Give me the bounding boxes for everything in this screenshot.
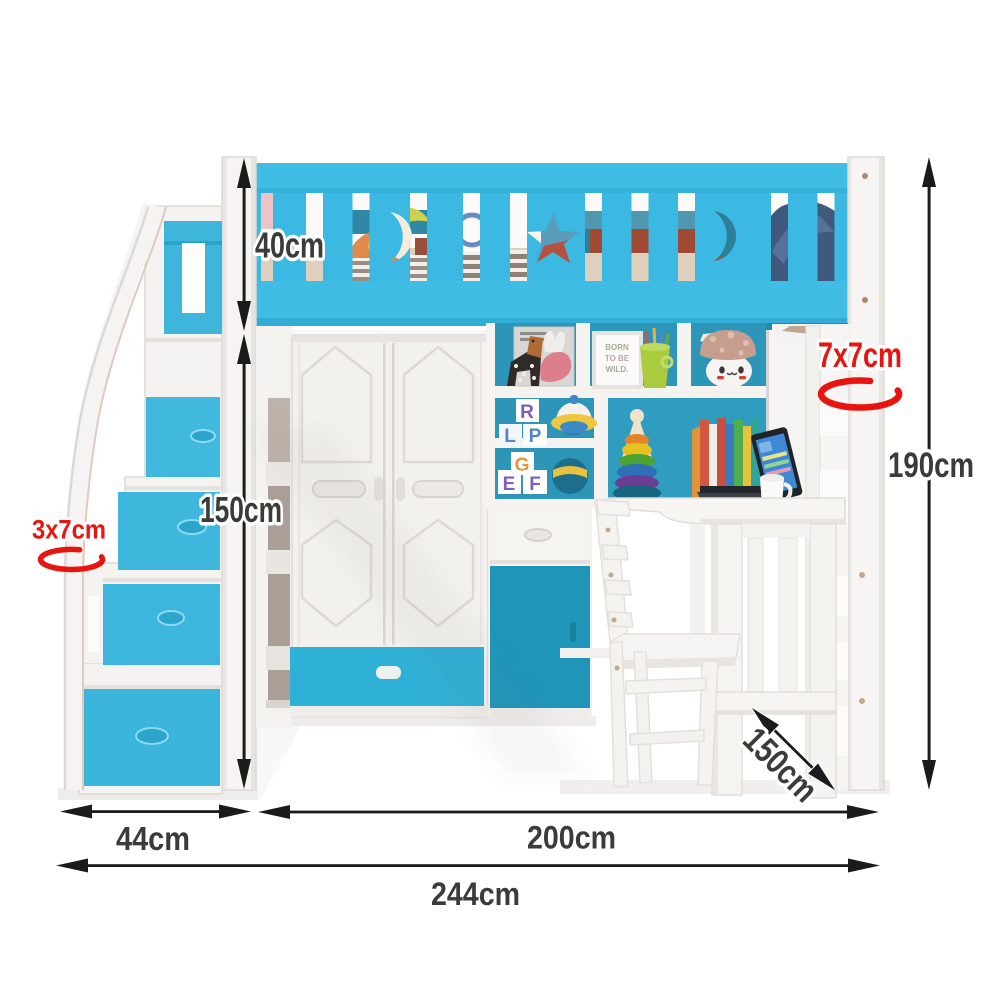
svg-text:150cm: 150cm xyxy=(200,489,282,530)
svg-text:BORN: BORN xyxy=(605,343,629,352)
svg-text:L: L xyxy=(504,426,516,447)
svg-text:200cm: 200cm xyxy=(527,820,616,856)
svg-text:3x7cm: 3x7cm xyxy=(32,515,106,545)
svg-text:E: E xyxy=(503,474,516,495)
svg-text:TO BE: TO BE xyxy=(605,354,630,363)
svg-text:40cm: 40cm xyxy=(255,225,324,266)
svg-text:190cm: 190cm xyxy=(888,446,974,485)
svg-text:F: F xyxy=(529,474,541,495)
svg-text:R: R xyxy=(520,402,534,423)
svg-text:44cm: 44cm xyxy=(116,820,190,857)
svg-text:P: P xyxy=(529,426,542,447)
svg-text:244cm: 244cm xyxy=(431,876,520,912)
svg-text:7x7cm: 7x7cm xyxy=(818,336,902,375)
svg-text:WILD.: WILD. xyxy=(606,365,629,374)
